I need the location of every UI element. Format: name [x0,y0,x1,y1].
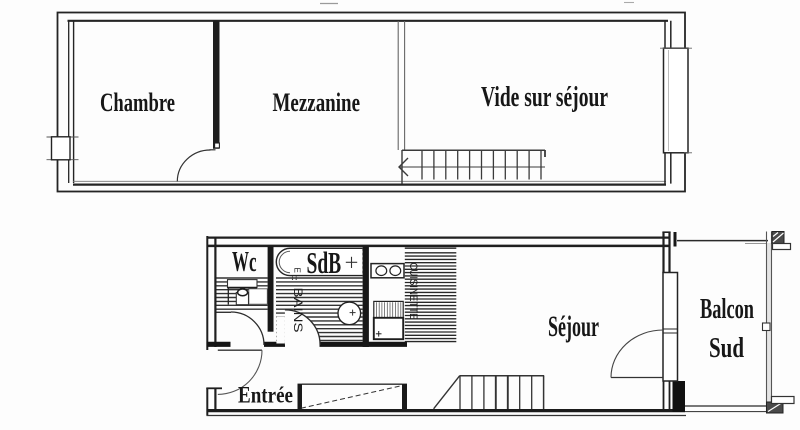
svg-text:Balcon: Balcon [700,294,754,325]
svg-text:E: E [293,268,302,273]
svg-text:Vide sur séjour: Vide sur séjour [481,82,608,113]
svg-text:BAINS: BAINS [291,288,303,333]
svg-text:SdB: SdB [307,246,342,280]
svg-text:Wc: Wc [232,247,257,278]
svg-text:Chambre: Chambre [100,88,175,117]
svg-text:Mezzanine: Mezzanine [273,88,361,117]
svg-text:Séjour: Séjour [548,311,599,343]
svg-text:Entrée: Entrée [238,383,293,409]
svg-text:Sud: Sud [709,333,744,364]
svg-text:CUISINETTE: CUISINETTE [407,263,419,320]
